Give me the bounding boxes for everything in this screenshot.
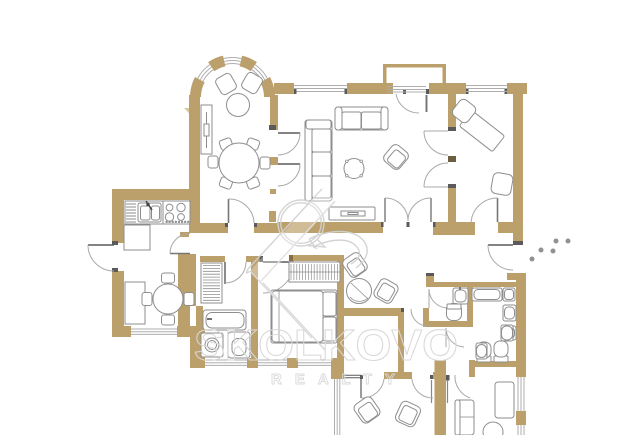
svg-text:REALTY: REALTY [271, 371, 408, 388]
svg-text:SKOLKOVO: SKOLKOVO [194, 321, 458, 370]
